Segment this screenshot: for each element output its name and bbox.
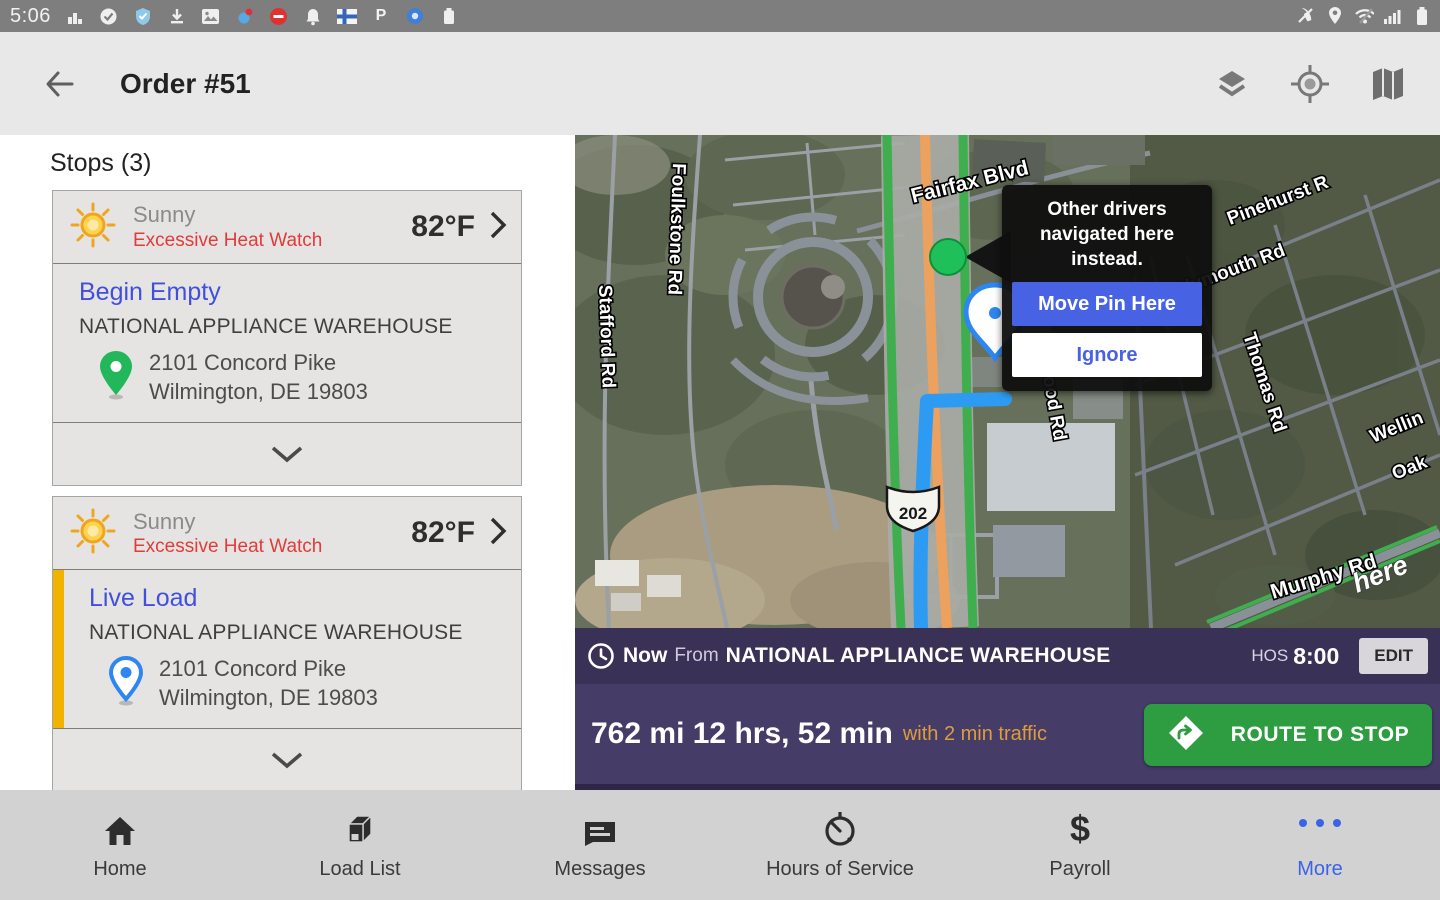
nav-item-messages[interactable]: Messages (480, 790, 720, 900)
weather-temperature: 82°F (411, 516, 475, 550)
nav-item-load-list[interactable]: Load List (240, 790, 480, 900)
weather-alert: Excessive Heat Watch (133, 535, 322, 559)
suggested-location-dot[interactable] (930, 239, 966, 275)
flag-icon (337, 6, 357, 26)
photo-icon (201, 6, 221, 26)
stop-type: Begin Empty (79, 278, 503, 307)
map-suggestion-tooltip: Other drivers navigated here instead. Mo… (1002, 185, 1212, 391)
route-summary-panel: 762 mi 12 hrs, 52 min with 2 min traffic… (575, 684, 1440, 790)
stops-title: Stops (3) (50, 149, 575, 178)
origin-location: NATIONAL APPLIANCE WAREHOUSE (726, 644, 1111, 668)
map-icon[interactable] (1366, 62, 1410, 106)
battery-small-icon (439, 6, 459, 26)
download-icon (167, 6, 187, 26)
weather-alert: Excessive Heat Watch (133, 229, 322, 253)
weather-condition: Sunny (133, 508, 322, 536)
stop-type: Live Load (89, 584, 503, 613)
depart-time-label: Now (623, 644, 667, 668)
weather-condition: Sunny (133, 201, 322, 229)
trip-origin-bar: Now From NATIONAL APPLIANCE WAREHOUSE HO… (575, 628, 1440, 684)
route-button-label: ROUTE TO STOP (1231, 723, 1410, 747)
map-view[interactable]: Stafford Rd Foulkstone Rd Fairfax Blvd P… (575, 135, 1440, 628)
header-actions (1210, 62, 1410, 106)
status-bar-right (1296, 6, 1440, 26)
chevron-right-icon (489, 516, 507, 551)
nav-item-hours-of-service[interactable]: Hours of Service (720, 790, 960, 900)
check-circle-icon (99, 6, 119, 26)
locate-icon[interactable] (1288, 62, 1332, 106)
stop-location-name: NATIONAL APPLIANCE WAREHOUSE (79, 315, 503, 339)
load-list-icon (342, 810, 378, 848)
messages-icon (581, 810, 619, 848)
app-header: Order #51 (0, 32, 1440, 135)
signal-chart-icon (65, 6, 85, 26)
clock-icon (587, 642, 615, 670)
move-pin-here-button[interactable]: Move Pin Here (1012, 282, 1202, 326)
stop-card-1: Sunny Excessive Heat Watch 82°F Begin Em… (52, 190, 522, 486)
svg-text:202: 202 (899, 504, 927, 523)
layers-icon[interactable] (1210, 62, 1254, 106)
sun-icon (69, 201, 117, 254)
app-screen: 5:06 P Order #51 (0, 0, 1440, 900)
chevron-right-icon (489, 210, 507, 245)
stop-location-name: NATIONAL APPLIANCE WAREHOUSE (89, 621, 503, 645)
hours-of-service-icon (822, 810, 858, 848)
stops-panel: Stops (3) Sunny Excessive Heat Watch 82°… (0, 135, 575, 790)
from-label: From (674, 645, 718, 667)
nav-item-more[interactable]: More (1200, 790, 1440, 900)
status-bar-left: 5:06 P (0, 5, 459, 28)
route-distance-duration: 762 mi 12 hrs, 52 min (591, 717, 893, 751)
back-button[interactable] (42, 66, 78, 102)
shield-icon (133, 6, 153, 26)
phone-mute-icon (1296, 6, 1316, 26)
p-icon: P (371, 6, 391, 26)
bell-icon (303, 6, 323, 26)
svg-text:Stafford Rd: Stafford Rd (594, 284, 619, 388)
highway-us202 (887, 135, 973, 628)
weather-badge-icon (235, 6, 255, 26)
battery-icon (1412, 6, 1432, 26)
stop-2-weather-row[interactable]: Sunny Excessive Heat Watch 82°F (53, 497, 521, 569)
stop-1-weather-row[interactable]: Sunny Excessive Heat Watch 82°F (53, 191, 521, 263)
traffic-note: with 2 min traffic (903, 723, 1047, 746)
active-stop-stripe (53, 570, 64, 728)
blue-circle-icon (405, 6, 425, 26)
clock-time: 5:06 (10, 5, 51, 28)
stop-1-details[interactable]: Begin Empty NATIONAL APPLIANCE WAREHOUSE… (53, 264, 521, 422)
page-title: Order #51 (120, 68, 251, 100)
nav-item-payroll[interactable]: $ Payroll (960, 790, 1200, 900)
payroll-icon: $ (1070, 810, 1090, 848)
do-not-disturb-icon (269, 6, 289, 26)
blue-pin-icon (105, 655, 151, 712)
hos-value: 8:00 (1293, 643, 1339, 670)
address-line-2: Wilmington, DE 19803 (159, 684, 378, 713)
stop-2-expand-button[interactable] (53, 729, 521, 790)
wifi-off-icon (1354, 6, 1374, 26)
status-bar: 5:06 P (0, 0, 1440, 32)
address-line-2: Wilmington, DE 19803 (149, 378, 368, 407)
navigation-diamond-icon (1167, 714, 1205, 757)
hos-label: HOS (1251, 646, 1288, 666)
location-pin-icon (1325, 6, 1345, 26)
edit-button[interactable]: EDIT (1359, 638, 1428, 674)
more-icon (1299, 810, 1341, 848)
signal-bars-icon (1383, 6, 1403, 26)
address-line-1: 2101 Concord Pike (159, 655, 378, 684)
bottom-navigation: Home Load List Messages Hours of Service… (0, 790, 1440, 900)
stop-2-details[interactable]: Live Load NATIONAL APPLIANCE WAREHOUSE 2… (53, 570, 521, 728)
sun-icon (69, 507, 117, 560)
tooltip-message: Other drivers navigated here instead. (1012, 197, 1202, 272)
stop-card-2: Sunny Excessive Heat Watch 82°F Live Loa… (52, 496, 522, 790)
weather-temperature: 82°F (411, 210, 475, 244)
home-icon (102, 810, 138, 848)
ignore-button[interactable]: Ignore (1012, 333, 1202, 377)
stop-1-expand-button[interactable] (53, 423, 521, 485)
address-line-1: 2101 Concord Pike (149, 349, 368, 378)
nav-item-home[interactable]: Home (0, 790, 240, 900)
green-pin-icon (95, 349, 141, 406)
route-to-stop-button[interactable]: ROUTE TO STOP (1144, 704, 1432, 766)
